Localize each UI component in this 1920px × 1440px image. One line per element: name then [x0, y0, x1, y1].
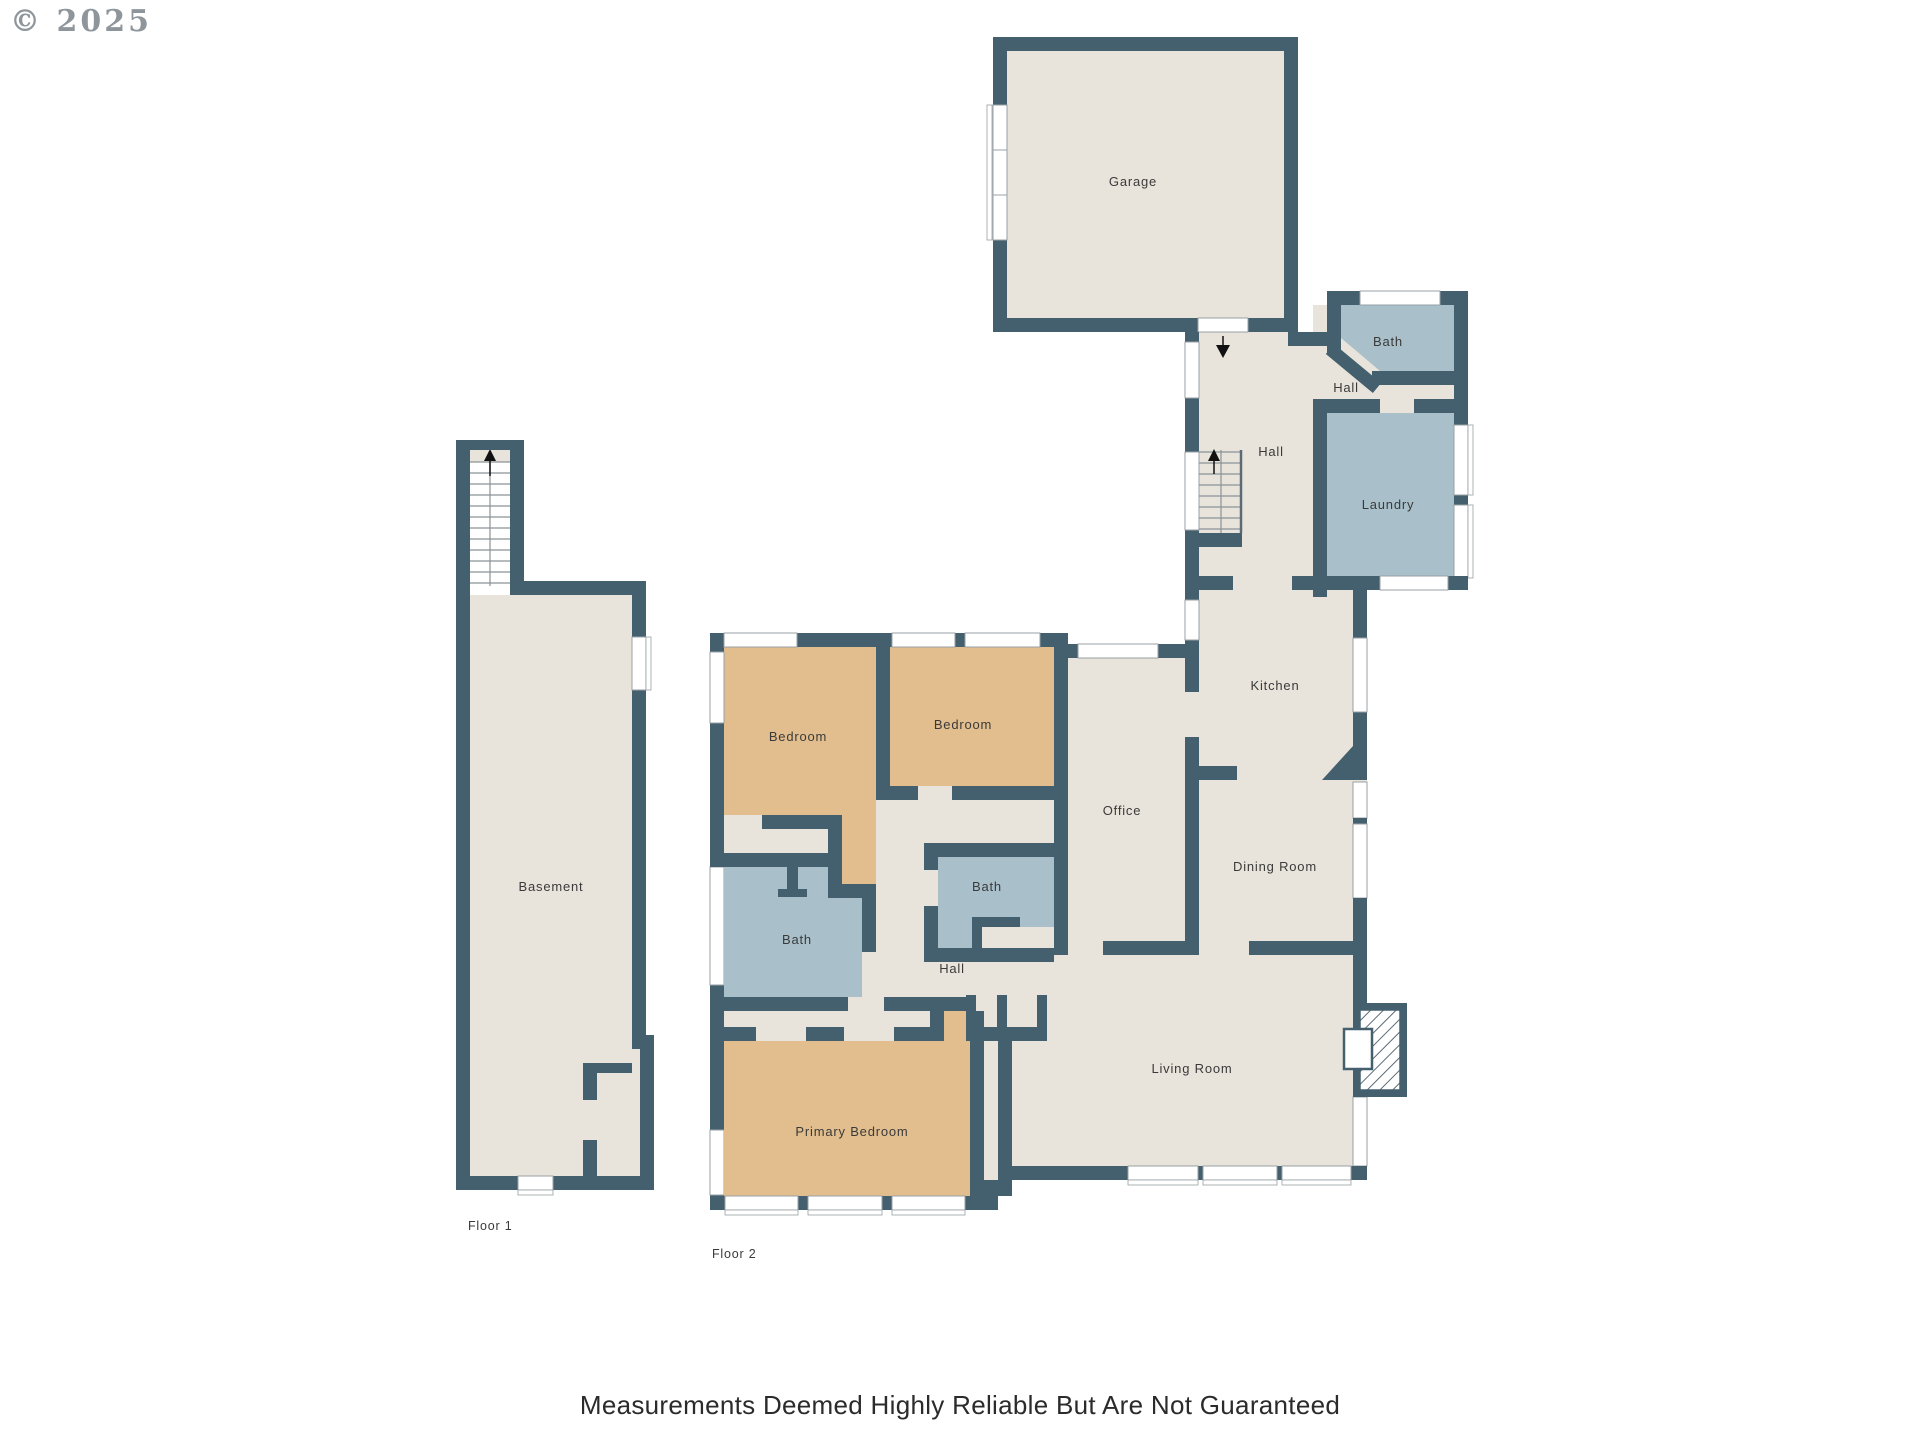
room-label-dining: Dining Room — [1233, 859, 1317, 874]
floor2-plan: Garage Bath Hall Hall Laundry Kitchen Di… — [710, 37, 1473, 1261]
room-label-bedroom-left: Bedroom — [769, 729, 827, 744]
room-label-office: Office — [1103, 803, 1142, 818]
floor2-label: Floor 2 — [712, 1247, 757, 1261]
fireplace — [1344, 1003, 1407, 1097]
room-label-hall-small: Hall — [1333, 380, 1359, 395]
floor1-label: Floor 1 — [468, 1219, 513, 1233]
room-label-garage: Garage — [1109, 174, 1157, 189]
room-label-hall-entry: Hall — [1258, 444, 1284, 459]
bath-small-room — [924, 843, 1054, 962]
room-label-bath-main: Bath — [782, 932, 812, 947]
floor1-basement-plan: Basement Floor 1 — [456, 440, 654, 1233]
room-label-bath-upper: Bath — [1373, 334, 1403, 349]
room-label-bath-small: Bath — [972, 879, 1002, 894]
floor-plan-canvas: Basement Floor 1 — [0, 0, 1920, 1440]
room-label-living: Living Room — [1151, 1061, 1232, 1076]
room-label-kitchen: Kitchen — [1251, 678, 1300, 693]
room-label-basement: Basement — [519, 879, 584, 894]
room-label-bedroom-right: Bedroom — [934, 717, 992, 732]
room-label-primary: Primary Bedroom — [795, 1124, 908, 1139]
disclaimer-text: Measurements Deemed Highly Reliable But … — [0, 1390, 1920, 1421]
room-label-hall-middle: Hall — [939, 961, 965, 976]
basement-staircase — [470, 449, 510, 586]
room-label-laundry: Laundry — [1362, 497, 1415, 512]
